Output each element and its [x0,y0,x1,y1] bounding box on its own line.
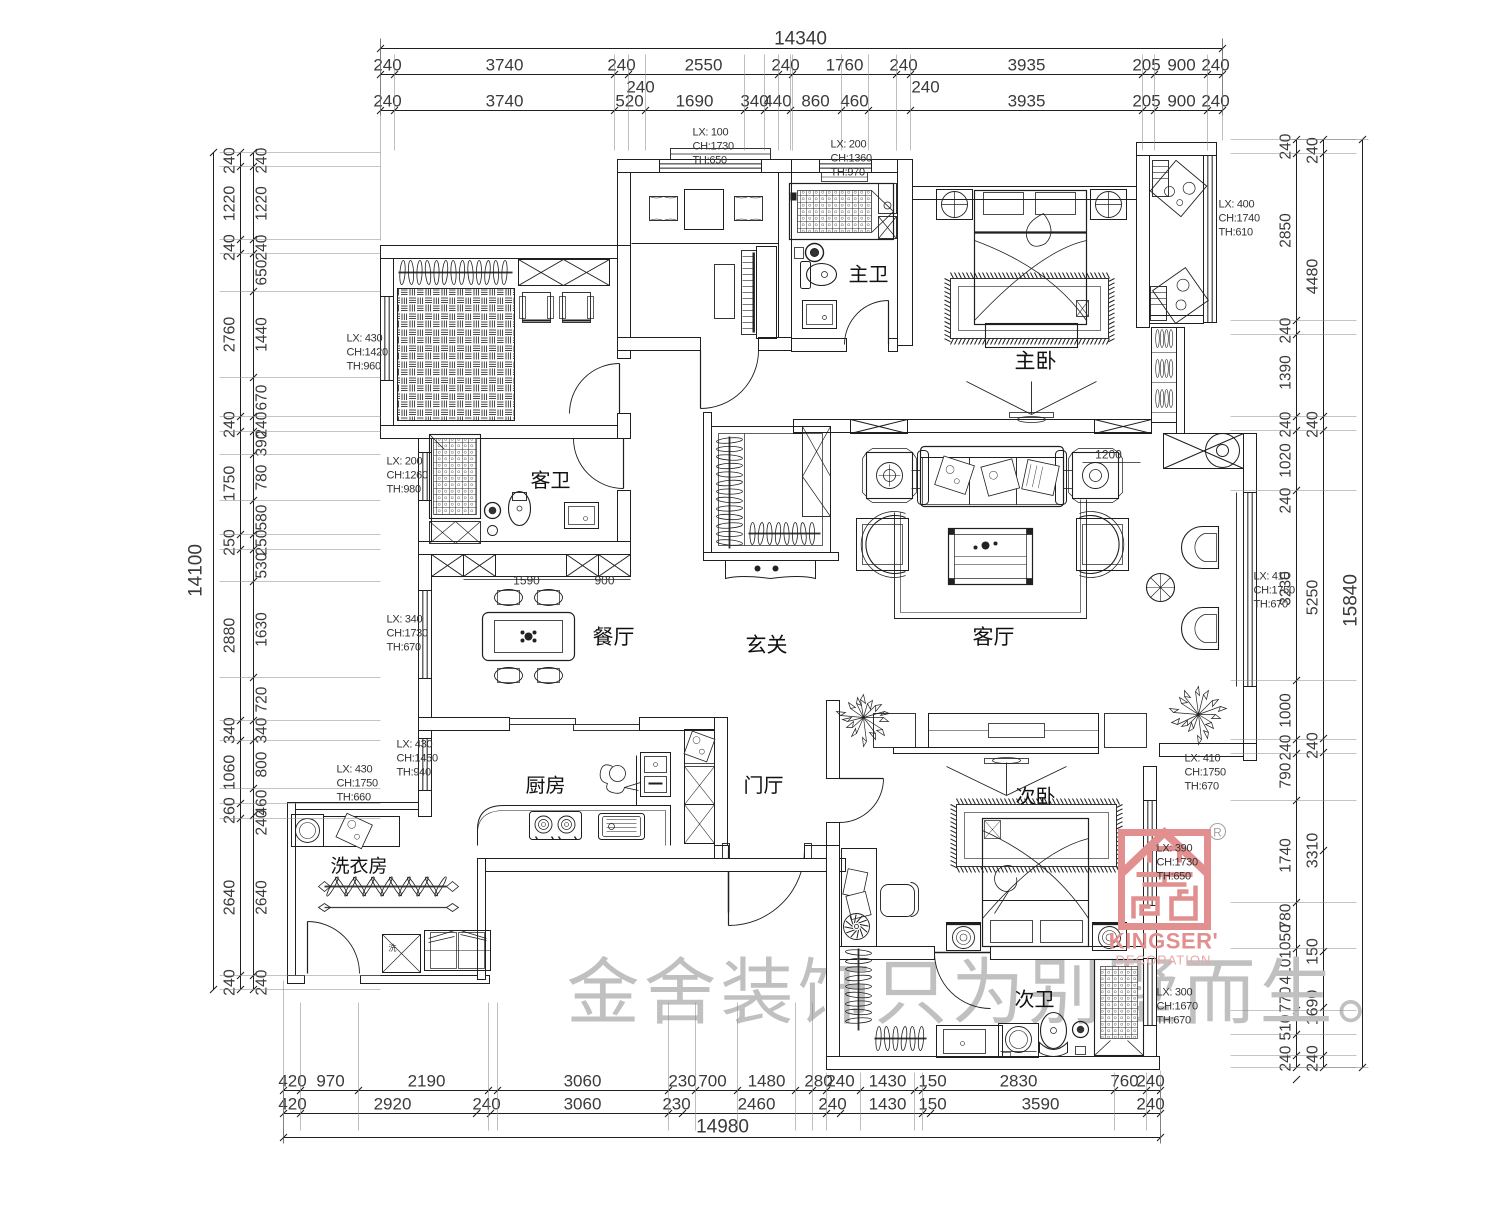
svg-text:LX: 400: LX: 400 [1219,199,1255,211]
svg-text:LX: 390: LX: 390 [1157,843,1193,855]
svg-text:240: 240 [222,234,239,261]
svg-text:3740: 3740 [486,56,524,75]
svg-text:240: 240 [1305,732,1322,759]
svg-text:970: 970 [316,1072,344,1091]
svg-text:CH:1730: CH:1730 [1157,857,1198,869]
svg-text:LX: 430: LX: 430 [347,333,383,345]
svg-text:14340: 14340 [774,29,827,50]
svg-text:240: 240 [1278,133,1295,159]
svg-text:14100: 14100 [186,544,207,597]
svg-text:240: 240 [373,56,401,75]
svg-text:1740: 1740 [1278,838,1295,873]
svg-text:240: 240 [254,809,271,835]
svg-text:240: 240 [222,147,239,174]
svg-text:420: 420 [278,1072,306,1091]
svg-text:3935: 3935 [1008,92,1046,111]
svg-text:1430: 1430 [869,1095,907,1114]
svg-text:1750: 1750 [222,466,239,502]
svg-text:DECORATION: DECORATION [1116,953,1212,968]
svg-text:TH:610: TH:610 [1219,227,1253,239]
svg-text:TH:670: TH:670 [387,642,421,654]
svg-text:240: 240 [1305,1045,1322,1072]
svg-text:2190: 2190 [408,1072,446,1091]
svg-text:240: 240 [771,56,799,75]
svg-text:240: 240 [607,56,635,75]
svg-text:340: 340 [222,717,239,744]
svg-text:240: 240 [373,92,401,111]
svg-text:CH:1670: CH:1670 [1157,1001,1198,1013]
svg-text:LX: 200: LX: 200 [387,456,423,468]
svg-text:250: 250 [222,529,239,556]
svg-text:3590: 3590 [1022,1095,1060,1114]
svg-text:900: 900 [1167,92,1195,111]
svg-text:240: 240 [1278,734,1295,760]
svg-text:TH:650: TH:650 [693,155,727,167]
svg-text:2920: 2920 [374,1095,412,1114]
svg-text:1480: 1480 [748,1072,786,1091]
svg-text:150: 150 [1305,938,1322,965]
svg-text:240: 240 [472,1095,500,1114]
svg-text:15840: 15840 [1341,574,1362,627]
svg-text:240: 240 [818,1095,846,1114]
svg-text:340: 340 [254,717,271,743]
svg-text:TH:980: TH:980 [387,484,421,496]
svg-text:800: 800 [254,751,271,777]
svg-text:1220: 1220 [254,186,271,221]
svg-text:1430: 1430 [869,1072,907,1091]
svg-text:240: 240 [1278,317,1295,343]
svg-text:3060: 3060 [564,1072,602,1091]
svg-text:洗: 洗 [389,943,397,953]
svg-text:2760: 2760 [222,317,239,353]
svg-text:1200: 1200 [1095,448,1122,462]
svg-text:1690: 1690 [676,92,714,111]
svg-text:240: 240 [254,147,271,173]
svg-text:250: 250 [254,529,271,555]
svg-text:CH:1450: CH:1450 [397,753,438,765]
svg-text:LX: 340: LX: 340 [387,614,423,626]
svg-text:240: 240 [1201,56,1229,75]
svg-text:5250: 5250 [1305,580,1322,616]
svg-text:CH:1260: CH:1260 [387,470,428,482]
svg-text:650: 650 [254,259,271,285]
svg-text:390: 390 [254,430,271,456]
svg-text:CH:1730: CH:1730 [693,141,734,153]
svg-text:2640: 2640 [222,880,239,916]
svg-text:TH:960: TH:960 [347,361,381,373]
svg-text:780: 780 [254,464,271,490]
svg-text:700: 700 [698,1072,726,1091]
svg-text:240: 240 [911,78,939,97]
svg-text:3310: 3310 [1305,833,1322,869]
svg-text:900: 900 [1167,56,1195,75]
svg-text:2830: 2830 [1000,1072,1038,1091]
svg-text:4480: 4480 [1305,259,1322,295]
svg-text:1630: 1630 [254,612,271,647]
svg-text:240: 240 [1201,92,1229,111]
svg-text:260: 260 [222,797,239,824]
svg-text:TH:940: TH:940 [397,767,431,779]
svg-text:1590: 1590 [513,574,540,588]
svg-text:2850: 2850 [1278,213,1295,248]
svg-text:LX: 200: LX: 200 [831,139,867,151]
svg-text:CH:1750: CH:1750 [337,778,378,790]
svg-text:TH:970: TH:970 [831,167,865,179]
svg-text:LX: 430: LX: 430 [397,739,433,751]
svg-text:900: 900 [594,574,614,588]
svg-text:240: 240 [826,1072,854,1091]
svg-text:CH:1740: CH:1740 [1219,213,1260,225]
svg-text:2880: 2880 [222,618,239,654]
svg-text:1760: 1760 [826,56,864,75]
svg-text:770: 770 [1278,986,1295,1012]
svg-text:720: 720 [254,686,271,712]
svg-text:240: 240 [1278,411,1295,437]
svg-text:CH:1420: CH:1420 [347,347,388,359]
svg-text:KINGSER': KINGSER' [1109,929,1218,954]
svg-text:1050: 1050 [1278,924,1295,959]
svg-text:TH:670: TH:670 [1157,1015,1191,1027]
svg-text:1000: 1000 [1278,693,1295,728]
svg-text:420: 420 [278,1095,306,1114]
svg-text:TH:650: TH:650 [1157,871,1191,883]
svg-text:860: 860 [801,92,829,111]
svg-text:240: 240 [626,78,654,97]
svg-text:580: 580 [254,504,271,530]
svg-text:14980: 14980 [696,1117,749,1138]
svg-text:240: 240 [1305,137,1322,164]
svg-text:205: 205 [1132,92,1160,111]
svg-text:790: 790 [1278,762,1295,788]
svg-text:LX: 410: LX: 410 [1185,753,1221,765]
svg-text:CH:1750: CH:1750 [1254,585,1295,597]
svg-text:3740: 3740 [486,92,524,111]
svg-text:240: 240 [254,234,271,260]
svg-text:3060: 3060 [564,1095,602,1114]
svg-text:CH:1360: CH:1360 [831,153,872,165]
svg-text:CH:1750: CH:1750 [1185,767,1226,779]
svg-text:1390: 1390 [1278,355,1295,390]
svg-text:670: 670 [254,384,271,410]
svg-text:3935: 3935 [1008,56,1046,75]
svg-text:240: 240 [222,969,239,996]
svg-text:1020: 1020 [1278,443,1295,478]
svg-text:LX: 100: LX: 100 [693,127,729,139]
svg-text:1060: 1060 [222,755,239,791]
svg-text:205: 205 [1132,56,1160,75]
svg-text:230: 230 [662,1095,690,1114]
svg-text:2550: 2550 [685,56,723,75]
svg-text:2460: 2460 [738,1095,776,1114]
svg-text:LX: 410: LX: 410 [1254,571,1290,583]
svg-text:TH:660: TH:660 [337,792,371,804]
svg-text:1440: 1440 [254,317,271,352]
svg-text:TH:670: TH:670 [1254,599,1288,611]
svg-text:440: 440 [763,92,791,111]
svg-text:1220: 1220 [222,186,239,222]
svg-text:230: 230 [668,1072,696,1091]
svg-text:240: 240 [889,56,917,75]
svg-text:R: R [1213,826,1222,840]
svg-text:240: 240 [222,411,239,438]
svg-text:240: 240 [1278,487,1295,513]
svg-text:240: 240 [1305,411,1322,438]
svg-text:240: 240 [254,969,271,995]
svg-text:LX: 430: LX: 430 [337,764,373,776]
svg-text:530: 530 [254,552,271,578]
svg-text:CH:1730: CH:1730 [387,628,428,640]
svg-text:TH:670: TH:670 [1185,781,1219,793]
svg-text:460: 460 [840,92,868,111]
svg-text:LX: 300: LX: 300 [1157,987,1193,999]
svg-text:2640: 2640 [254,880,271,915]
